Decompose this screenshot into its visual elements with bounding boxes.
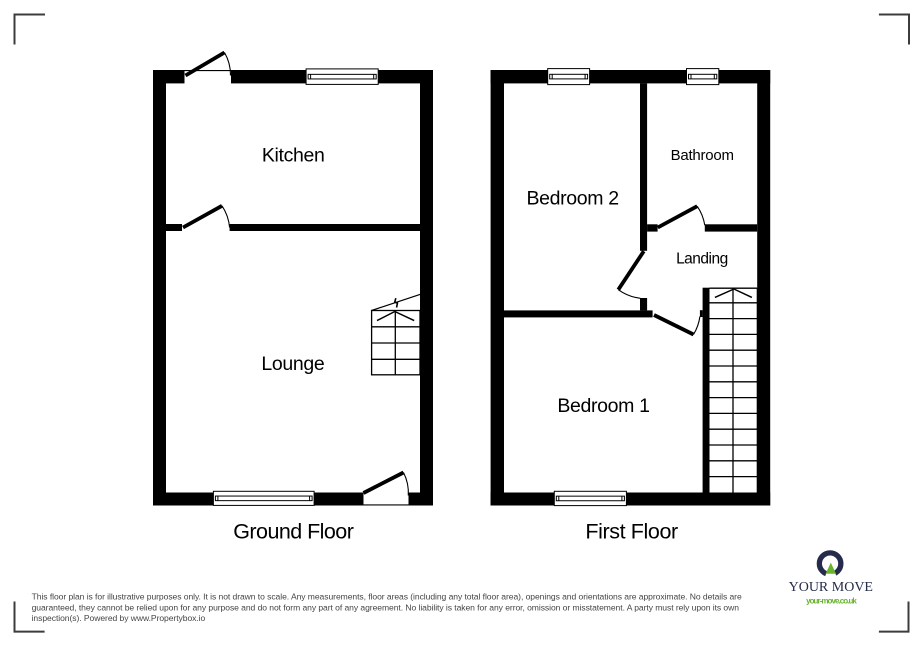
svg-text:Landing: Landing: [676, 251, 728, 268]
svg-text:Bedroom 1: Bedroom 1: [557, 395, 649, 417]
svg-text:Bathroom: Bathroom: [671, 147, 734, 164]
svg-text:guaranteed, they cannot be rel: guaranteed, they cannot be relied upon f…: [32, 603, 740, 613]
svg-text:Bedroom 2: Bedroom 2: [526, 187, 618, 209]
svg-text:First Floor: First Floor: [585, 520, 678, 544]
svg-text:Ground Floor: Ground Floor: [233, 520, 353, 544]
svg-text:This floor plan is for illustr: This floor plan is for illustrative purp…: [32, 591, 742, 601]
svg-text:inspection(s). Powered by www.: inspection(s). Powered by www.Propertybo…: [32, 613, 206, 623]
svg-text:your-move.co.uk: your-move.co.uk: [806, 597, 857, 606]
svg-text:Lounge: Lounge: [261, 353, 324, 375]
svg-text:YOUR MOVE: YOUR MOVE: [789, 580, 873, 595]
svg-text:Kitchen: Kitchen: [262, 144, 325, 166]
